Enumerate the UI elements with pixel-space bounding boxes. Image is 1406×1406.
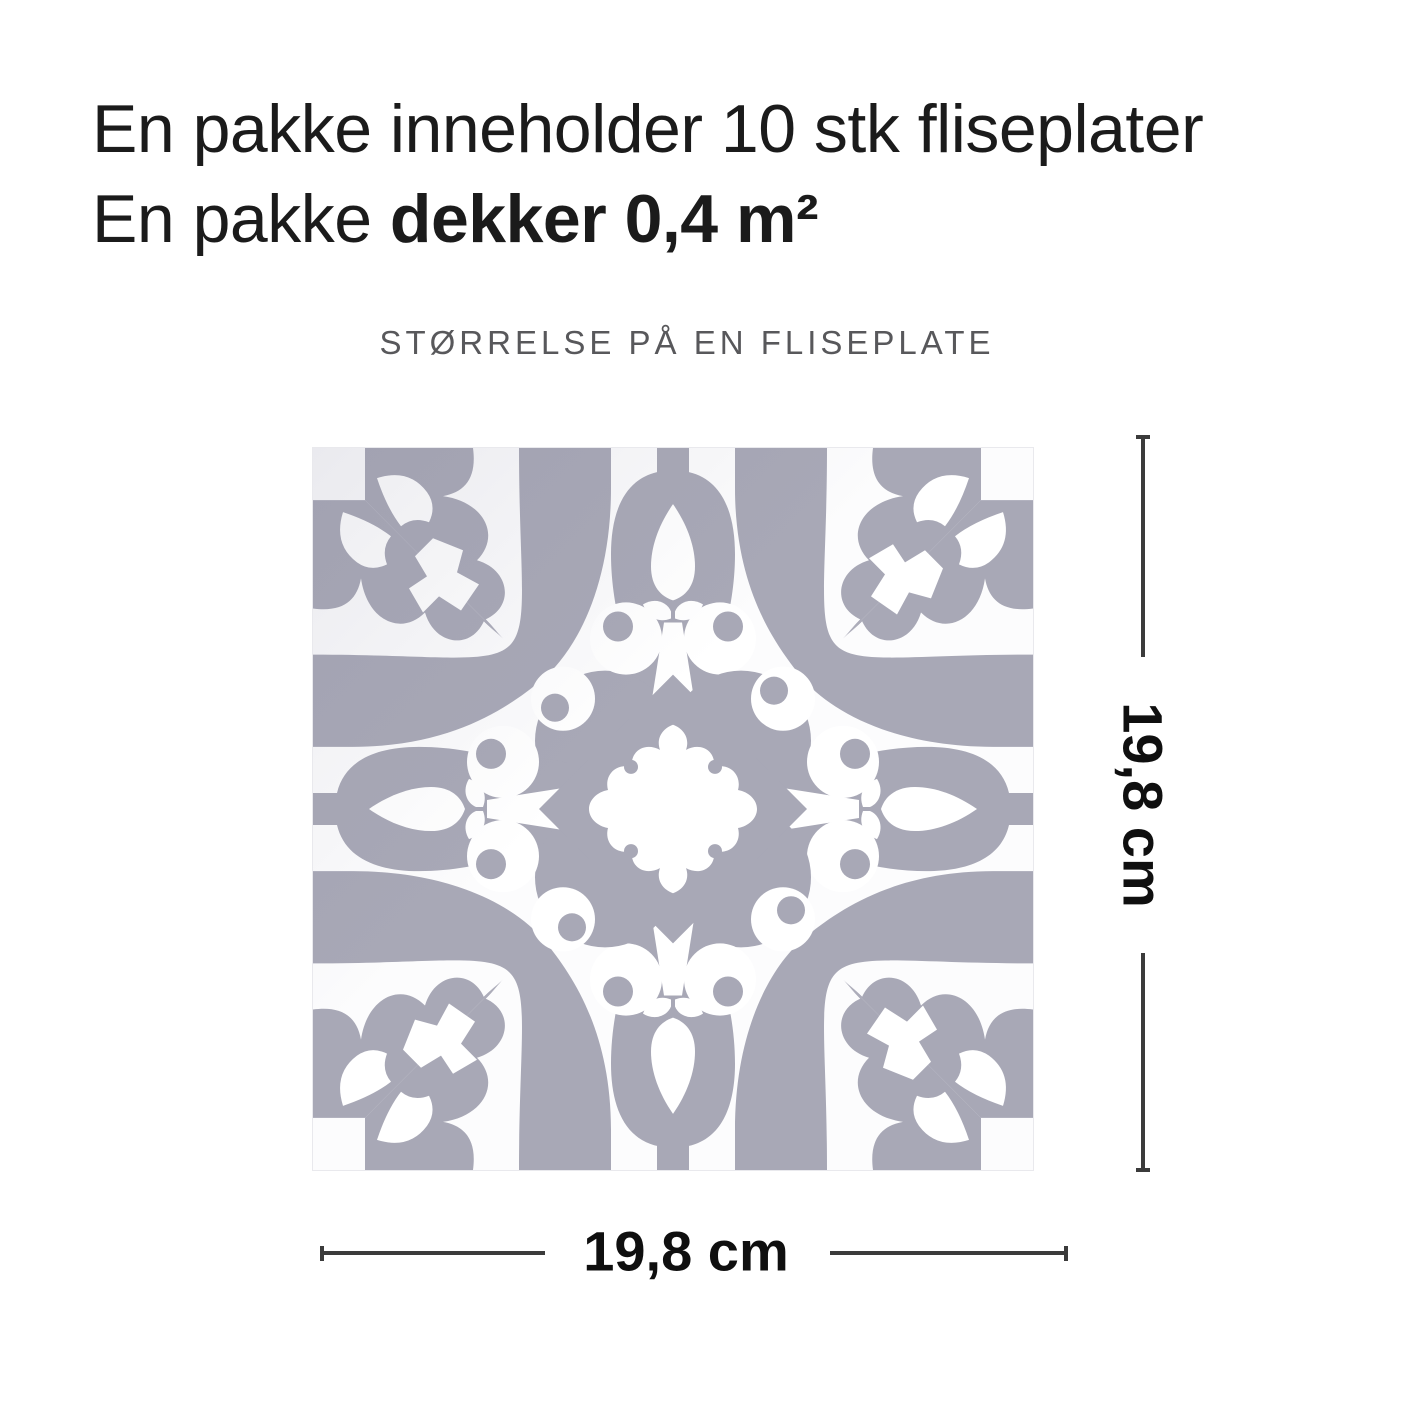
tile-image xyxy=(312,447,1034,1171)
heading-line-2-bold: dekker 0,4 m² xyxy=(390,181,818,257)
tile-pattern-svg xyxy=(313,448,1033,1170)
width-dimension-left-line xyxy=(324,1251,545,1255)
product-size-infographic: En pakke inneholder 10 stk fliseplater E… xyxy=(0,0,1406,1406)
height-dimension-lower-line xyxy=(1141,953,1145,1168)
height-dimension-label: 19,8 cm xyxy=(1111,702,1176,908)
heading-line-1: En pakke inneholder 10 stk fliseplater xyxy=(92,84,1203,174)
heading-line-2: En pakke dekker 0,4 m² xyxy=(92,174,1203,264)
width-dimension-label: 19,8 cm xyxy=(583,1219,789,1284)
width-dimension-right-tick xyxy=(1064,1246,1068,1261)
tile-gloss-reflection xyxy=(313,448,1033,1170)
heading-line-1-text: En pakke inneholder 10 stk fliseplater xyxy=(92,91,1203,167)
tile-size-caption: STØRRELSE PÅ EN FLISEPLATE xyxy=(0,324,1374,362)
height-dimension-upper-line xyxy=(1141,439,1145,657)
height-dimension-bottom-tick xyxy=(1136,1168,1150,1172)
width-dimension-right-line xyxy=(830,1251,1064,1255)
package-info-heading: En pakke inneholder 10 stk fliseplater E… xyxy=(92,84,1203,264)
heading-line-2-regular: En pakke xyxy=(92,181,390,257)
